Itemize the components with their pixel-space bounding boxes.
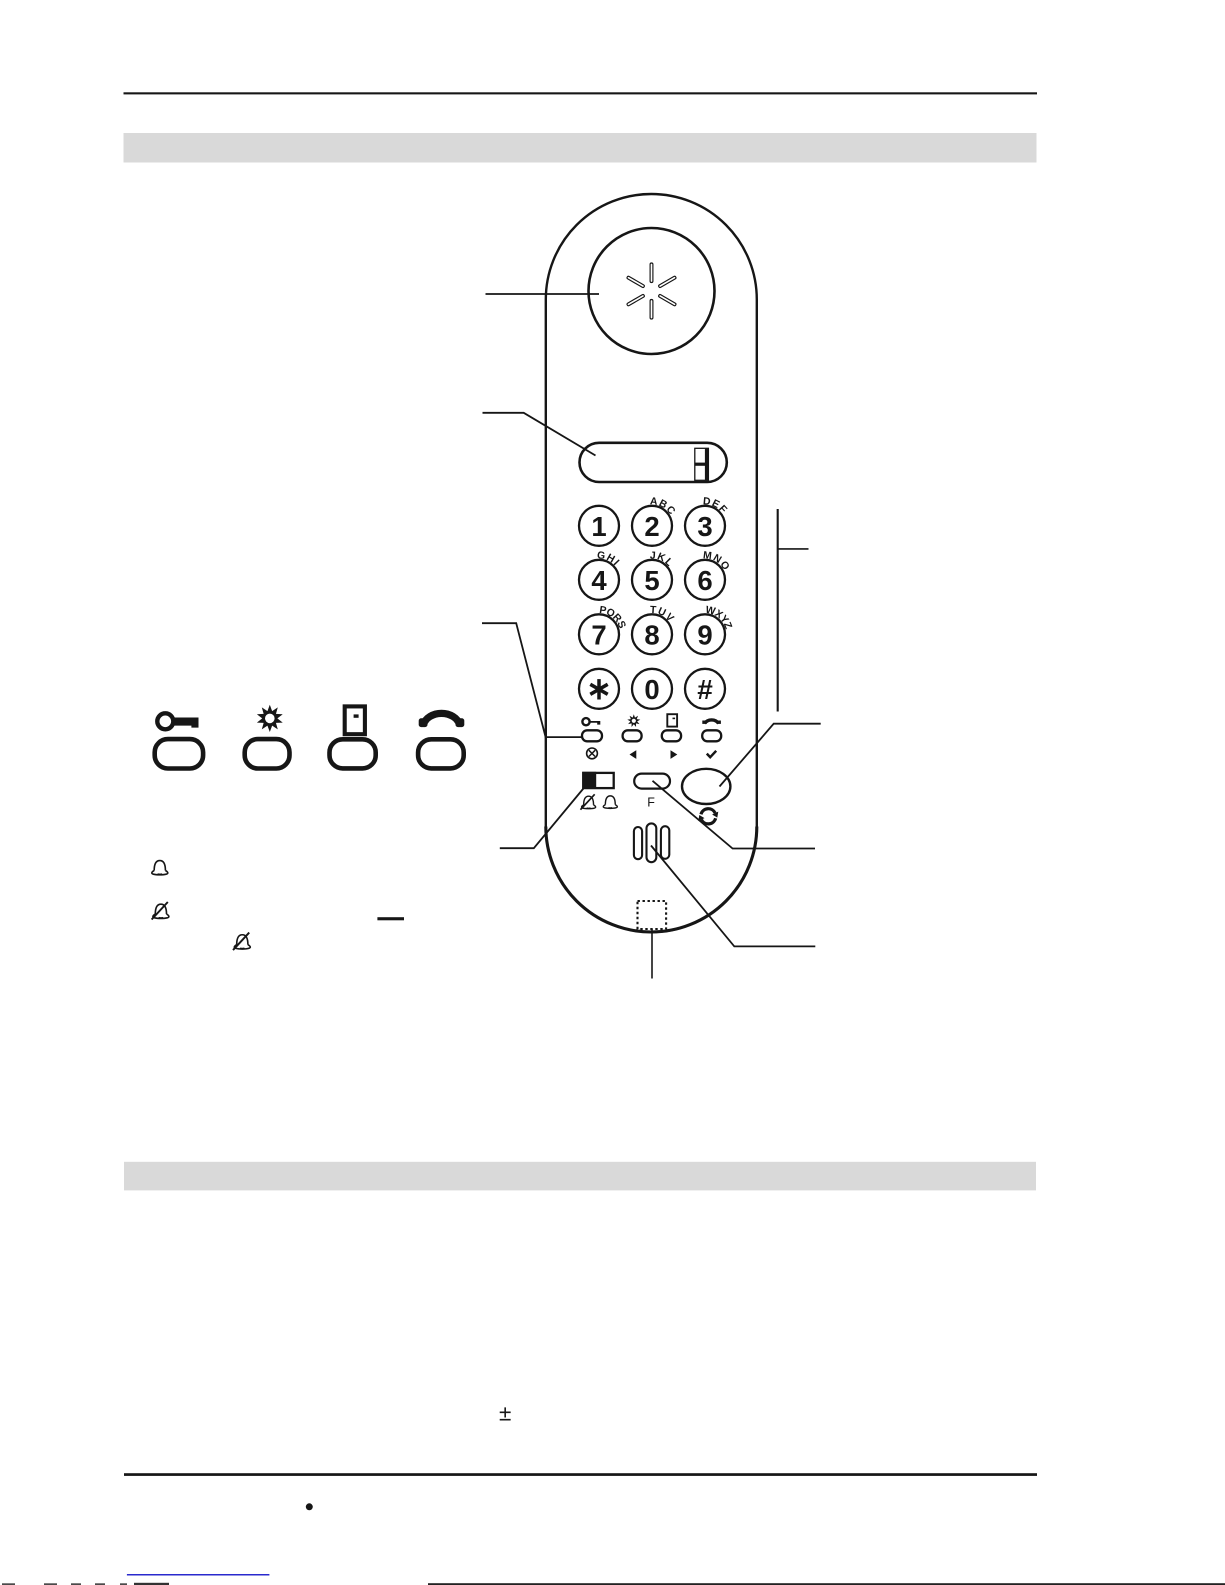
svg-text:0: 0	[644, 674, 659, 705]
svg-text:3: 3	[697, 511, 712, 542]
svg-text:9: 9	[697, 619, 712, 650]
svg-text:F: F	[647, 796, 655, 810]
svg-text:1: 1	[591, 511, 606, 542]
svg-text:2: 2	[644, 511, 659, 542]
svg-text:5: 5	[644, 565, 659, 596]
svg-text:6: 6	[697, 565, 712, 596]
svg-text:±: ±	[499, 1401, 511, 1426]
svg-text:7: 7	[591, 619, 606, 650]
svg-text:8: 8	[644, 619, 659, 650]
svg-text:4: 4	[591, 565, 607, 596]
svg-text:#: #	[697, 674, 713, 705]
